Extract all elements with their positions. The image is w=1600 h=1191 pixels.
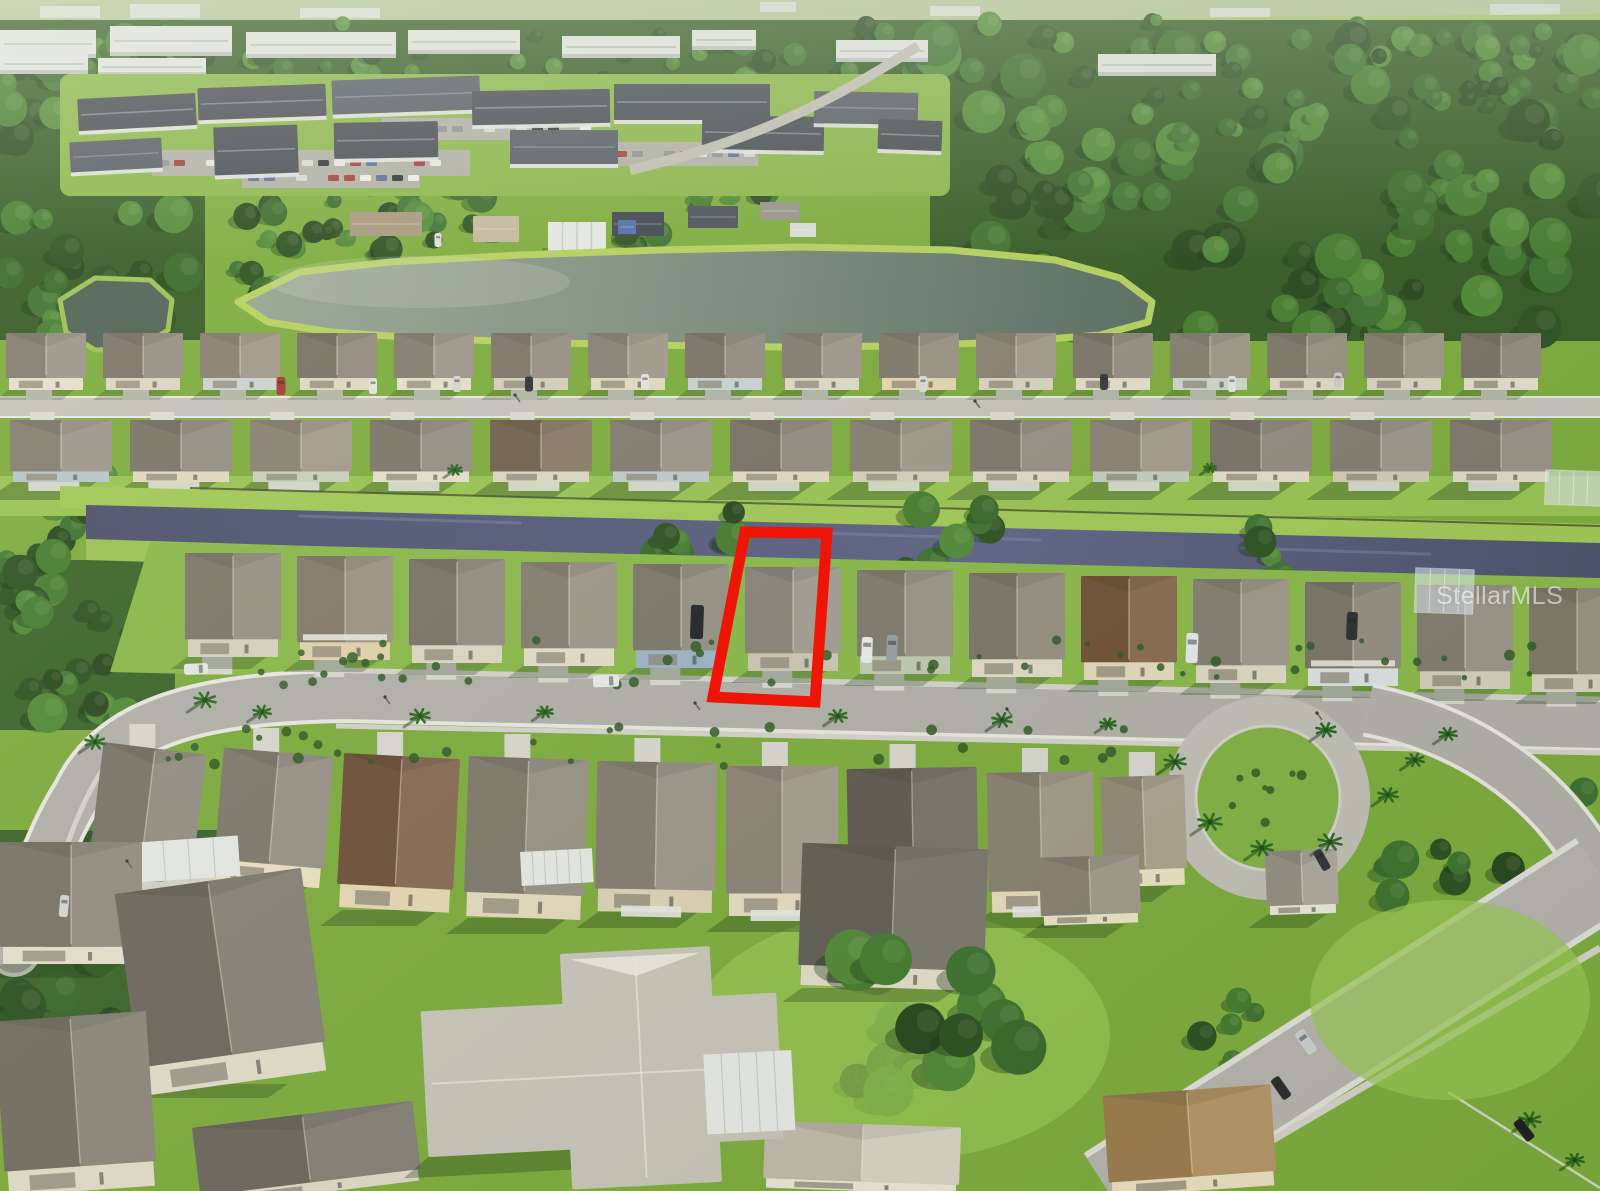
- aerial-photo-listing: StellarMLS: [0, 0, 1600, 1191]
- light: [0, 0, 1600, 1191]
- aerial-scene: [0, 0, 1600, 1191]
